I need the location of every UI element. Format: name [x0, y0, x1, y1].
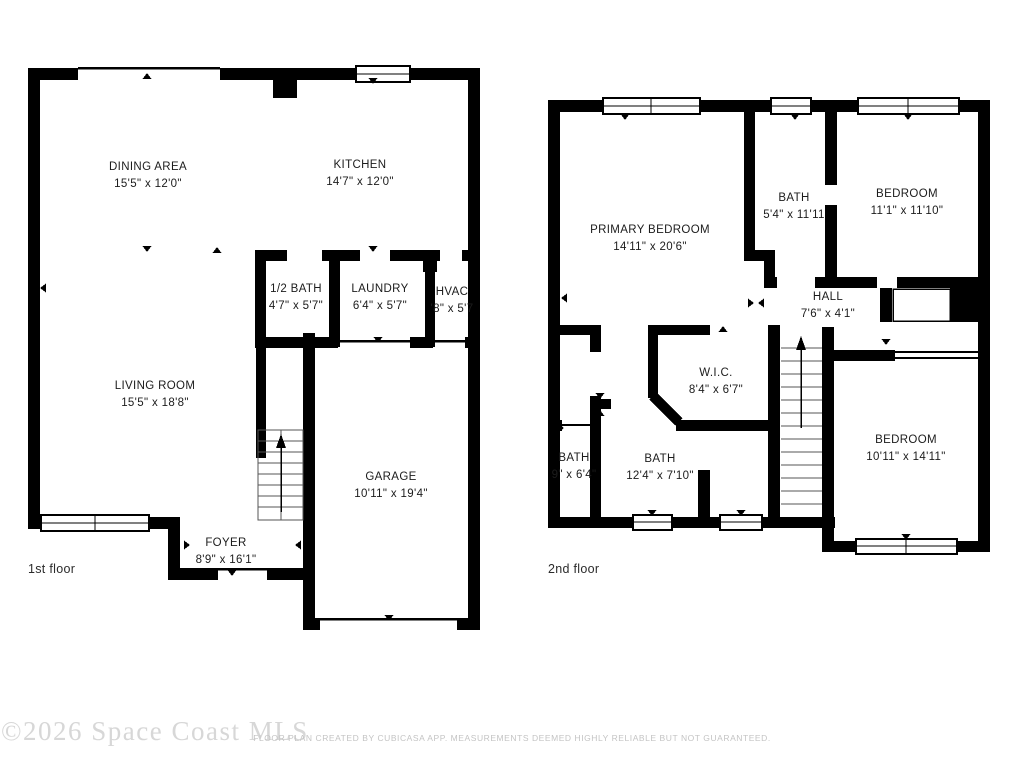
room-dims: 10'11" x 19'4"	[354, 486, 428, 503]
room-dims: 4'7" x 5'7"	[269, 298, 323, 315]
room-label-bedroom-bottom: BEDROOM 10'11" x 14'11"	[866, 432, 945, 466]
room-label-foyer: FOYER 8'9" x 16'1"	[196, 535, 257, 569]
room-name: HVAC	[431, 284, 474, 301]
room-dims: 8'9" x 16'1"	[196, 552, 257, 569]
room-name: DINING AREA	[109, 159, 187, 176]
room-name: BATH	[552, 450, 597, 467]
room-dims: 7'6" x 4'1"	[801, 306, 855, 323]
room-dims: 14'7" x 12'0"	[326, 174, 394, 191]
room-label-bath-top: BATH 5'4" x 11'11	[763, 190, 824, 224]
room-label-hall: HALL 7'6" x 4'1"	[801, 289, 855, 323]
second-floor-walls	[548, 100, 990, 552]
room-label-dining-area: DINING AREA 15'5" x 12'0"	[109, 159, 187, 193]
room-label-laundry: LAUNDRY 6'4" x 5'7"	[351, 281, 408, 315]
room-name: PRIMARY BEDROOM	[590, 222, 710, 239]
room-name: 1/2 BATH	[269, 281, 323, 298]
room-label-half-bath: 1/2 BATH 4'7" x 5'7"	[269, 281, 323, 315]
room-name: W.I.C.	[689, 365, 743, 382]
room-dims: 15'5" x 12'0"	[109, 176, 187, 193]
room-label-bath-small: BATH 9" x 6'4"	[552, 450, 597, 484]
second-floor-caption: 2nd floor	[548, 562, 599, 576]
second-floor-stairs	[781, 336, 822, 504]
room-label-kitchen: KITCHEN 14'7" x 12'0"	[326, 157, 394, 191]
room-name: KITCHEN	[326, 157, 394, 174]
first-floor-caption: 1st floor	[28, 562, 75, 576]
second-floor-door-markers	[558, 114, 913, 540]
room-label-wic: W.I.C. 8'4" x 6'7"	[689, 365, 743, 399]
room-name: BATH	[626, 451, 694, 468]
room-name: BEDROOM	[866, 432, 945, 449]
room-name: LIVING ROOM	[115, 378, 196, 395]
room-dims: 5'4" x 11'11	[763, 207, 824, 224]
room-label-bedroom-top: BEDROOM 11'1" x 11'10"	[871, 186, 944, 220]
room-name: FOYER	[196, 535, 257, 552]
room-name: GARAGE	[354, 469, 428, 486]
room-dims: 10'11" x 14'11"	[866, 449, 945, 466]
room-name: LAUNDRY	[351, 281, 408, 298]
room-name: BEDROOM	[871, 186, 944, 203]
room-name: HALL	[801, 289, 855, 306]
room-dims: 14'11" x 20'6"	[590, 239, 710, 256]
room-dims: 6'4" x 5'7"	[351, 298, 408, 315]
room-dims: 9" x 6'4"	[552, 467, 597, 484]
room-dims: 8'4" x 6'7"	[689, 382, 743, 399]
room-label-primary-bedroom: PRIMARY BEDROOM 14'11" x 20'6"	[590, 222, 710, 256]
room-label-garage: GARAGE 10'11" x 19'4"	[354, 469, 428, 503]
room-dims: '8" x 5'7	[431, 301, 474, 318]
room-label-bath-mid: BATH 12'4" x 7'10"	[626, 451, 694, 485]
room-dims: 11'1" x 11'10"	[871, 203, 944, 220]
room-label-hvac: HVAC '8" x 5'7	[431, 284, 474, 318]
room-dims: 15'5" x 18'8"	[115, 395, 196, 412]
room-dims: 12'4" x 7'10"	[626, 468, 694, 485]
room-label-living-room: LIVING ROOM 15'5" x 18'8"	[115, 378, 196, 412]
cubicasa-disclaimer: FLOOR PLAN CREATED BY CUBICASA APP. MEAS…	[253, 733, 771, 743]
room-name: BATH	[763, 190, 824, 207]
